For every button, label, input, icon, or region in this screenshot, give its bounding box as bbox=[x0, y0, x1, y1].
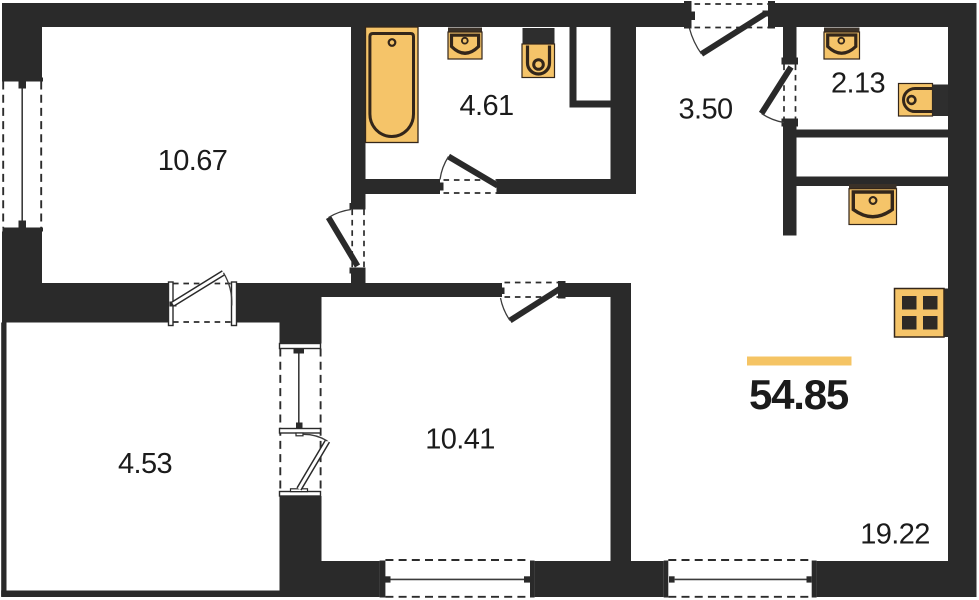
svg-text:4.61: 4.61 bbox=[459, 90, 513, 122]
svg-text:2.13: 2.13 bbox=[831, 68, 885, 100]
svg-text:3.50: 3.50 bbox=[678, 94, 732, 126]
svg-text:54.85: 54.85 bbox=[749, 371, 849, 418]
svg-text:10.67: 10.67 bbox=[158, 145, 228, 177]
svg-text:10.41: 10.41 bbox=[425, 424, 495, 456]
svg-text:19.22: 19.22 bbox=[860, 519, 930, 551]
svg-text:4.53: 4.53 bbox=[118, 448, 172, 480]
